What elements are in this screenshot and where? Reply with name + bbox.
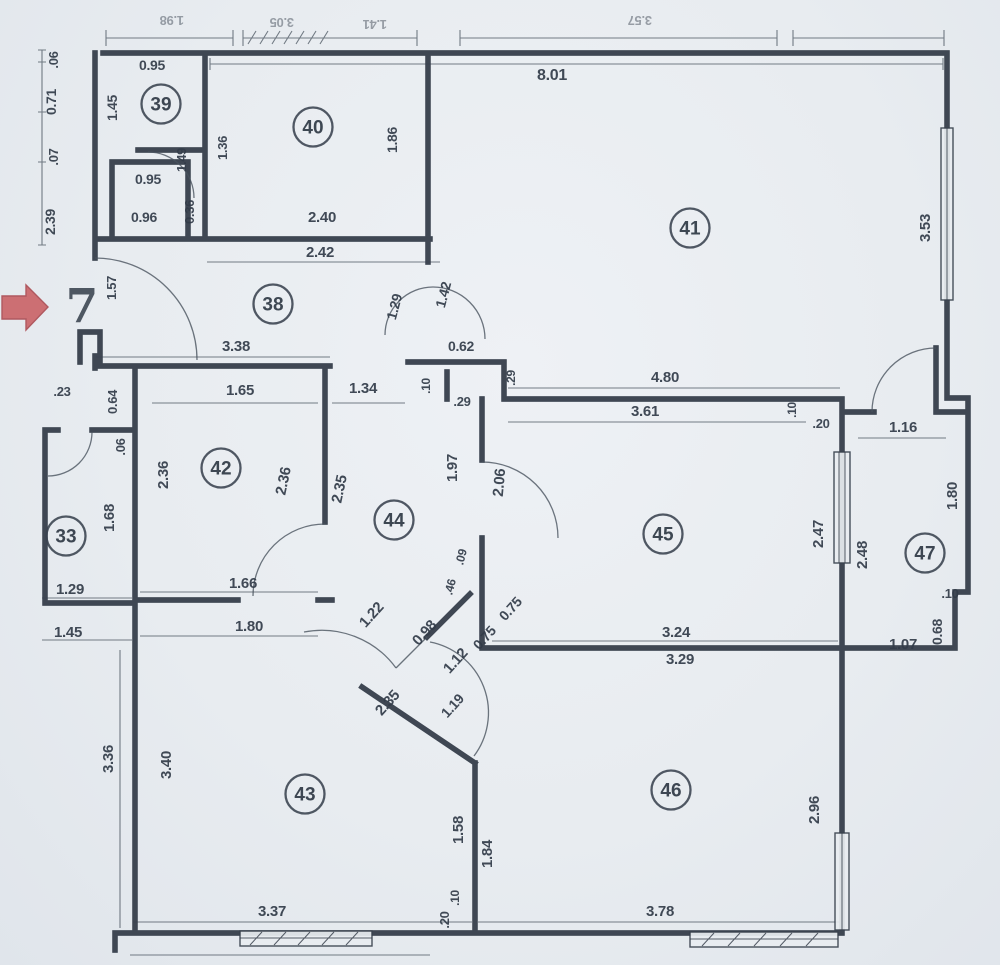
- room-number: 44: [383, 511, 405, 532]
- dimension-label: .20: [437, 911, 452, 928]
- dimension-label: 1.84: [479, 839, 496, 868]
- dimension-label: 0.95: [139, 57, 166, 73]
- room-number: 42: [210, 459, 231, 480]
- dimension-label: 8.01: [537, 67, 567, 84]
- dimension-label: 1.22: [356, 599, 387, 631]
- room-number: 40: [302, 118, 323, 139]
- dimension-label: 3.78: [646, 903, 674, 920]
- dimension-label: 1.07: [889, 636, 917, 653]
- window-symbol: [690, 932, 838, 947]
- room-label-45: 45: [644, 515, 683, 554]
- dimension-label: 1.41: [363, 17, 387, 32]
- dimension-label: 0.98: [409, 617, 440, 649]
- dimension-label: 1.57: [104, 276, 119, 300]
- dimension-label: 2.36: [272, 466, 294, 497]
- room-label-43: 43: [286, 775, 325, 814]
- dimension-label: 1.19: [438, 690, 468, 720]
- dimension-label: 1.45: [54, 624, 82, 641]
- dimension-label: 0.75: [496, 593, 526, 623]
- dimension-label: 2.48: [854, 541, 871, 569]
- room-number: 45: [652, 525, 674, 546]
- dimension-label: 3.57: [628, 13, 652, 28]
- room-label-42: 42: [202, 449, 241, 488]
- dimension-label: .09: [452, 547, 470, 566]
- dimension-label: 1.80: [944, 482, 961, 510]
- dimension-label: 2.96: [806, 796, 823, 824]
- door-arc: [48, 432, 92, 476]
- door-arc: [95, 258, 197, 360]
- dimension-label: 1.98: [160, 13, 184, 28]
- floor-plan-canvas: 7 3338394041424344454647 1.983.051.413.5…: [0, 0, 1000, 965]
- dimension-label: 1.36: [215, 136, 230, 160]
- dimension-label: 1.80: [235, 618, 263, 635]
- room-label-38: 38: [254, 285, 293, 324]
- dimension-label: 4.80: [651, 369, 679, 386]
- dimension-label: .10: [419, 377, 433, 393]
- dimension-label: 1.16: [889, 419, 917, 436]
- dimension-label: 3.38: [222, 338, 250, 355]
- dimension-label: 3.61: [631, 403, 659, 420]
- walls: [45, 53, 968, 950]
- dimension-label: 1.34: [349, 380, 378, 397]
- dimension-label: 3.53: [917, 214, 934, 242]
- dimension-label: 1.97: [444, 454, 461, 482]
- dimension-label: 1.49: [174, 148, 189, 172]
- dimension-label: 1.29: [56, 581, 84, 598]
- room-label-41: 41: [671, 209, 710, 248]
- dimension-label: 0.96: [131, 209, 158, 225]
- room-number: 38: [262, 295, 283, 316]
- room-label-44: 44: [375, 501, 414, 540]
- room-number: 33: [55, 527, 76, 548]
- room-number: 47: [914, 544, 935, 565]
- dimension-label: 2.42: [306, 244, 334, 261]
- room-label-46: 46: [652, 771, 691, 810]
- room-number: 46: [660, 781, 681, 802]
- dimension-label: 2.47: [810, 520, 827, 548]
- dimension-label: .20: [812, 416, 829, 431]
- dimension-label: 3.24: [662, 624, 691, 641]
- dimension-label: .23: [53, 384, 70, 399]
- entrance-arrow-icon: [2, 285, 48, 330]
- dimension-label: 0.36: [182, 200, 197, 224]
- dimension-label: .06: [113, 438, 128, 455]
- dimension-label: 2.35: [328, 474, 350, 505]
- dimension-label: 2.36: [155, 461, 172, 489]
- dimension-label: 1.45: [104, 94, 120, 121]
- window-symbol: [240, 931, 372, 946]
- room-label-40: 40: [294, 108, 333, 147]
- room-labels: 3338394041424344454647: [47, 85, 945, 814]
- dimension-labels: 1.983.051.413.578.01.060.71.072.390.951.…: [42, 13, 961, 929]
- dimension-label: 2.39: [42, 208, 58, 235]
- room-number: 39: [150, 95, 171, 116]
- dimension-label: 3.29: [666, 651, 694, 668]
- dimension-label: 1.68: [101, 504, 118, 532]
- dimension-label: 2.06: [490, 468, 509, 497]
- entrance-number: 7: [66, 279, 99, 334]
- dimension-label: 0.62: [448, 338, 475, 354]
- room-label-33: 33: [47, 517, 86, 556]
- dimension-label: 1.66: [229, 575, 257, 592]
- dimension-label: 1.58: [450, 816, 467, 844]
- dimension-label: 1.42: [432, 280, 454, 310]
- door-arc: [872, 348, 936, 412]
- dimension-label: .06: [46, 51, 61, 68]
- dimension-label: 0.64: [105, 389, 120, 414]
- dimension-label: 0.68: [929, 618, 945, 645]
- room-number: 43: [294, 785, 315, 806]
- window-symbol: [834, 452, 850, 563]
- dimension-label: 0.95: [135, 171, 162, 187]
- room-label-39: 39: [142, 85, 181, 124]
- dimension-label: 1.65: [226, 382, 254, 399]
- dimension-label: 3.40: [158, 751, 175, 779]
- dimension-label: 1.86: [384, 126, 400, 153]
- dimension-label: 1.12: [440, 645, 471, 677]
- dimension-label: .29: [453, 394, 470, 409]
- door-arcs: [48, 152, 936, 756]
- dimension-label: .07: [46, 148, 61, 165]
- dimension-label: .29: [504, 369, 518, 385]
- dimension-label: .46: [441, 577, 459, 596]
- dimension-label: 1.29: [383, 292, 405, 322]
- dimension-label: 2.40: [308, 209, 336, 226]
- dimension-label: 0.71: [43, 88, 59, 115]
- dimension-label: .10: [448, 889, 462, 905]
- dimension-label: .10: [785, 401, 799, 417]
- window-symbol: [835, 833, 849, 930]
- floor-plan-scan: 7 3338394041424344454647 1.983.051.413.5…: [0, 0, 1000, 965]
- window-symbol: [941, 128, 953, 300]
- windows: [240, 128, 953, 947]
- dimension-label: 3.05: [270, 15, 294, 30]
- dimension-label: 3.37: [258, 903, 286, 920]
- dimension-label: 3.36: [100, 745, 117, 773]
- room-label-47: 47: [906, 534, 945, 573]
- door-arc: [253, 524, 325, 596]
- dimension-label: .10: [941, 586, 958, 601]
- room-number: 41: [679, 219, 701, 240]
